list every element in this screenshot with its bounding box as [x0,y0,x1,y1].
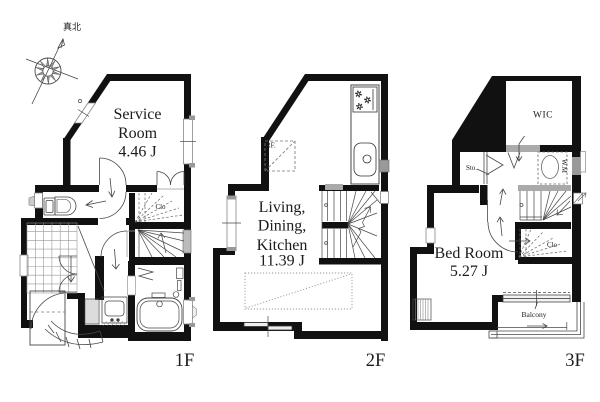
svg-text:1F: 1F [175,351,195,371]
svg-text:11.39 J: 11.39 J [259,253,305,270]
svg-text:真北: 真北 [63,21,81,32]
svg-text:RF.: RF. [266,142,276,150]
svg-text:Living,: Living, [259,199,306,216]
svg-text:4.46 J: 4.46 J [118,144,156,161]
svg-text:WIC: WIC [533,111,553,121]
svg-text:2F: 2F [366,351,386,371]
svg-text:Bed Room: Bed Room [435,245,504,262]
svg-text:3F: 3F [565,351,585,371]
svg-text:Dining,: Dining, [258,218,306,235]
svg-text:5.27 J: 5.27 J [450,263,488,280]
svg-text:Clo: Clo [155,203,166,211]
svg-text:Room: Room [118,125,158,142]
svg-text:Balcony: Balcony [522,310,547,319]
svg-text:Kitchen: Kitchen [257,237,308,254]
svg-text:W.M: W.M [560,159,568,174]
svg-text:Clo: Clo [547,241,558,249]
svg-text:Sto.: Sto. [466,164,477,172]
svg-text:Service: Service [114,106,162,123]
